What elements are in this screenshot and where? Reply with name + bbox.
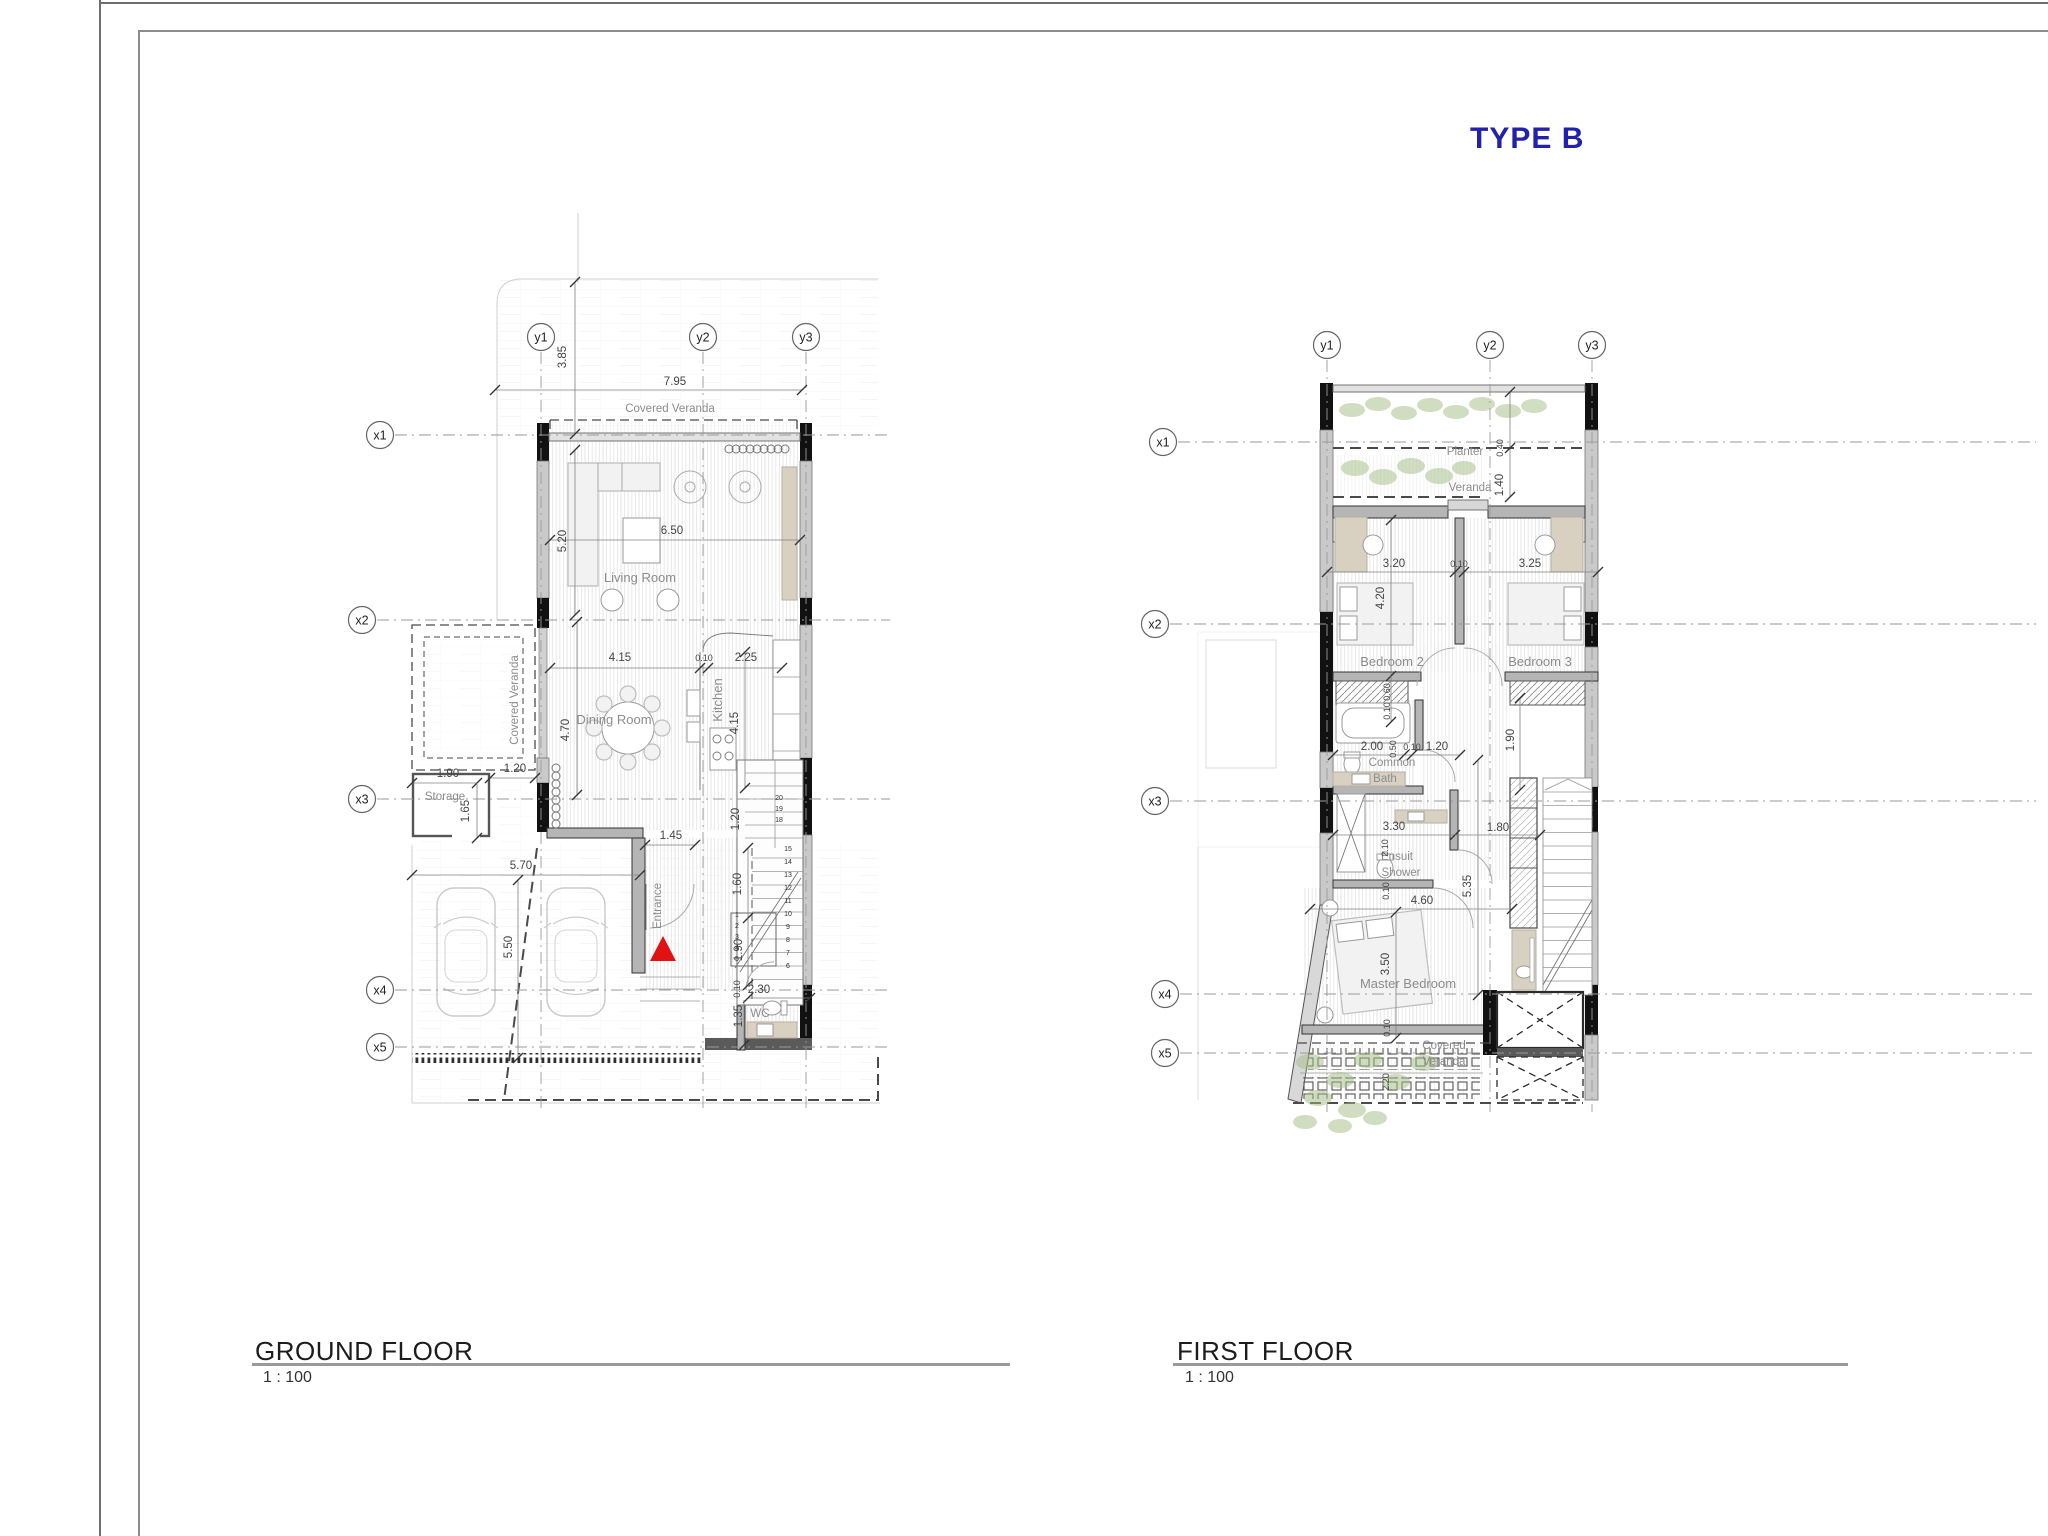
dimension-label: 1.35 — [733, 1005, 745, 1027]
label-ensuit-shower-2: Shower — [1382, 867, 1421, 879]
grid-marker-label: x1 — [373, 429, 386, 443]
stair-number: 1 — [735, 912, 739, 919]
grid-marker-label: y2 — [1483, 339, 1496, 353]
dimension-label: 1.40 — [1494, 474, 1506, 496]
grid-marker-label: x5 — [373, 1041, 386, 1055]
stair-number: 2 — [735, 923, 739, 930]
wardrobe-bedroom3 — [1510, 681, 1585, 705]
grid-marker-label: x1 — [1156, 436, 1169, 450]
dimension-label: 6.50 — [661, 525, 683, 537]
dimension-label: 3.25 — [1519, 558, 1541, 570]
stair-number: 6 — [786, 963, 790, 970]
dimension-label: 3.30 — [1383, 821, 1405, 833]
dimension-label: 5.70 — [510, 860, 532, 872]
label-covered-veranda-ff: Covered — [1422, 1040, 1465, 1052]
dimension-label: 1.45 — [660, 830, 682, 842]
dimension-label: 0.10 — [1403, 742, 1421, 752]
dimension-label: 1.80 — [1487, 822, 1509, 834]
stair-number: 13 — [784, 872, 792, 879]
label-covered-veranda-ff-2: Veranda — [1423, 1056, 1466, 1068]
dimension-label: 7.95 — [664, 376, 686, 388]
dimension-label: 1.20 — [504, 763, 526, 775]
grid-marker-label: x3 — [355, 793, 368, 807]
dimension-label: 5.35 — [1462, 875, 1474, 897]
dimension-label: 2.00 — [1361, 741, 1383, 753]
grid-marker-label: x4 — [1158, 988, 1171, 1002]
stair-number: 4 — [735, 945, 739, 952]
label-common-bath: Common — [1369, 757, 1416, 769]
stair-number: 20 — [775, 795, 783, 802]
label-living-room: Living Room — [604, 570, 676, 585]
label-bedroom-3: Bedroom 3 — [1508, 654, 1572, 669]
stair-number: 14 — [784, 859, 792, 866]
floor-plans-svg: y1y2y3x1x2x3x4x5 Covered VerandaLiving R… — [0, 0, 2048, 1536]
label-planter: Planter — [1447, 446, 1484, 458]
wardrobe-bedroom2 — [1336, 681, 1408, 705]
dimension-label: 0.10 — [1382, 702, 1392, 720]
ground-floor-scale: 1 : 100 — [263, 1369, 312, 1387]
stair-number: 18 — [775, 817, 783, 824]
grid-marker-label: x2 — [355, 614, 368, 628]
stair-number: 8 — [786, 937, 790, 944]
label-covered-veranda-left: Covered Veranda — [509, 655, 521, 745]
label-kitchen: Kitchen — [710, 678, 725, 721]
first-floor-plan: y1y2y3x1x2x3x4x5 PlanterVerandaBedroom 2… — [1142, 332, 2037, 1134]
ground-title-rule — [252, 1363, 1010, 1366]
dimension-label: 3.85 — [557, 346, 569, 368]
ground-floor-plan: y1y2y3x1x2x3x4x5 Covered VerandaLiving R… — [349, 213, 891, 1108]
dimension-label: 5.20 — [557, 530, 569, 552]
label-wc: WC — [750, 1008, 769, 1020]
driveway-curb — [412, 1053, 702, 1063]
stair-number: 11 — [784, 898, 791, 905]
dimension-label: 0.40 — [1495, 439, 1505, 457]
tv-cabinet — [782, 467, 797, 600]
dining-table — [586, 686, 670, 770]
stair-number: 15 — [784, 846, 792, 853]
label-entrance: Entrance — [652, 883, 664, 929]
dimension-label: 0.50 — [1388, 740, 1398, 758]
dimension-label: 2.25 — [735, 652, 757, 664]
dimension-label: 1.60 — [732, 873, 744, 895]
grid-marker-label: y3 — [799, 331, 812, 345]
dimension-label: 2.30 — [748, 984, 770, 996]
ff-grid-lines — [1170, 360, 2036, 1112]
dimension-label: 0.10 — [695, 653, 713, 663]
grid-marker-label: y1 — [1320, 339, 1333, 353]
label-common-bath-2: Bath — [1373, 773, 1397, 785]
label-veranda: Veranda — [1449, 482, 1492, 494]
dimension-label: 1.65 — [460, 800, 472, 822]
stair-number: 5 — [735, 956, 739, 963]
dimension-label: 2.20 — [1381, 1073, 1391, 1091]
dimension-label: 0.60 — [1382, 683, 1392, 701]
grid-marker-label: x3 — [1148, 795, 1161, 809]
first-floor-scale: 1 : 100 — [1185, 1369, 1234, 1387]
dimension-label: 5.50 — [503, 936, 515, 958]
dimension-label: 3.20 — [1383, 558, 1405, 570]
label-master-bedroom: Master Bedroom — [1360, 976, 1456, 991]
dimension-label: 0.10 — [1381, 882, 1391, 900]
first-title-rule — [1173, 1363, 1848, 1366]
stair-number: 10 — [784, 911, 792, 918]
stair-number: 3 — [735, 934, 739, 941]
grid-marker-label: x2 — [1148, 618, 1161, 632]
dimension-label: 4.15 — [729, 712, 741, 734]
dimension-label: 0.10 — [1450, 559, 1468, 569]
grid-marker-label: y1 — [534, 331, 547, 345]
grid-marker-label: x4 — [373, 984, 386, 998]
dimension-label: 1.90 — [437, 768, 459, 780]
dimension-label: 3.50 — [1380, 953, 1392, 975]
dimension-label: 4.20 — [1375, 587, 1387, 609]
label-bedroom-2: Bedroom 2 — [1360, 654, 1424, 669]
grid-marker-label: y3 — [1585, 339, 1598, 353]
drawing-sheet: TYPE B — [0, 0, 2048, 1536]
stair-number: 9 — [786, 924, 790, 931]
stair-number: 19 — [775, 806, 783, 813]
stair-number: 7 — [786, 950, 790, 957]
dimension-label: 4.70 — [560, 719, 572, 741]
grid-marker-label: y2 — [696, 331, 709, 345]
dimension-label: 1.20 — [730, 808, 742, 830]
ff-closet-stairs — [1510, 778, 1592, 995]
dimension-label: 1.90 — [1505, 729, 1517, 751]
stair-number: 12 — [784, 885, 792, 892]
void-boxes — [1483, 990, 1583, 1100]
dimension-label: 1.20 — [1426, 741, 1448, 753]
dimension-label: 4.15 — [609, 652, 631, 664]
label-covered-veranda-top: Covered Veranda — [625, 403, 715, 415]
label-dining-room: Dining Room — [576, 712, 651, 727]
dimension-label: 0.10 — [732, 980, 742, 998]
dimension-label: 2.10 — [1380, 839, 1390, 857]
dimension-label: 0.10 — [1382, 1019, 1392, 1037]
grid-marker-label: x5 — [1158, 1047, 1171, 1061]
dimension-label: 4.60 — [1411, 895, 1433, 907]
